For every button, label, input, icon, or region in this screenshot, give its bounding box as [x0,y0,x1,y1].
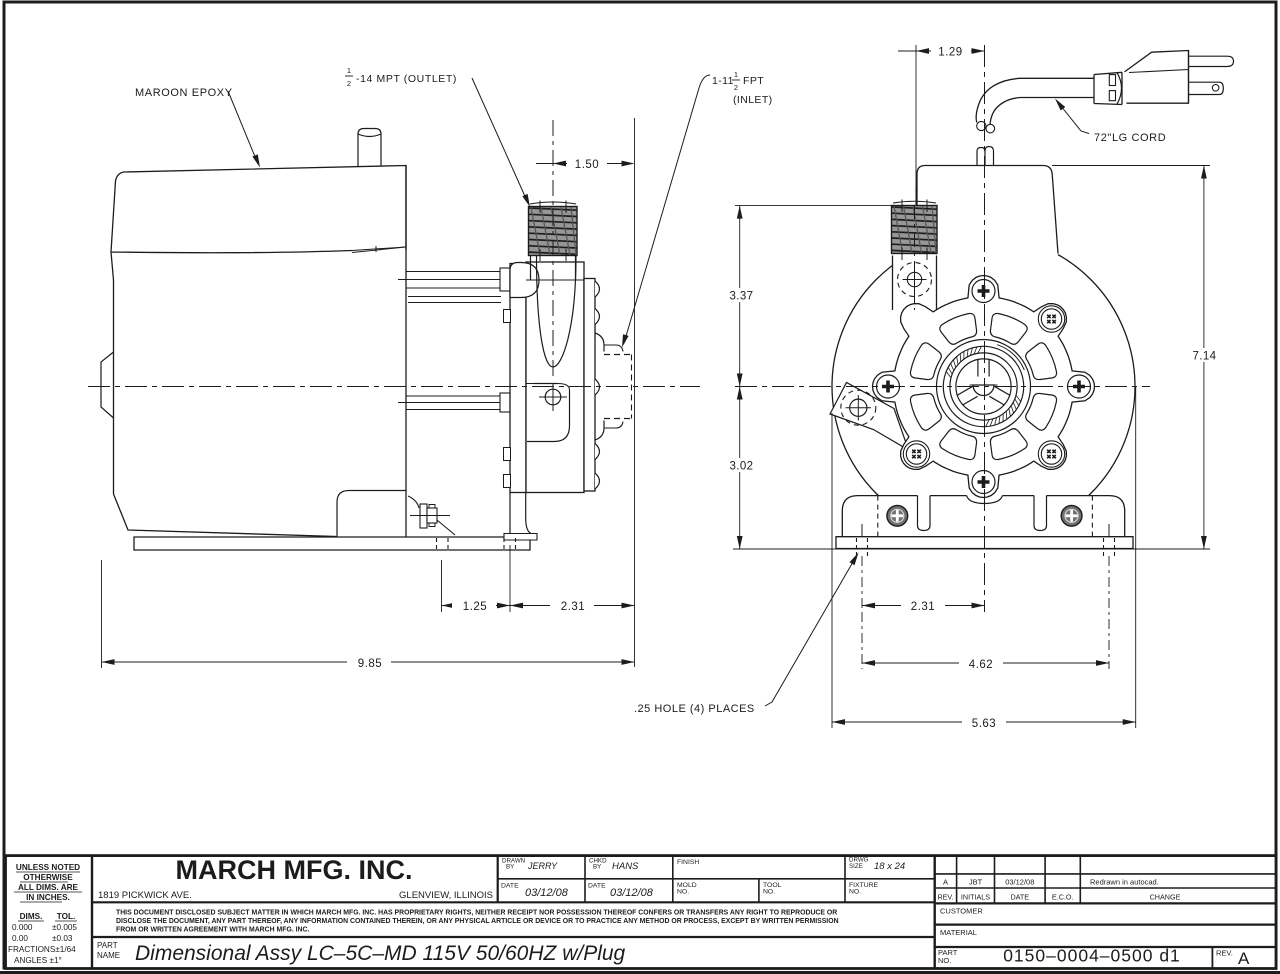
svg-text:±0.03: ±0.03 [52,934,73,943]
svg-text:9.85: 9.85 [358,658,382,670]
svg-text:DIMS.: DIMS. [20,912,43,921]
svg-text:FRACTIONS±1/64: FRACTIONS±1/64 [8,945,76,954]
svg-text:±0.005: ±0.005 [52,923,77,932]
svg-text:JERRY: JERRY [527,861,558,871]
svg-text:Dimensional Assy LC–5C–MD 1: Dimensional Assy LC–5C–MD 115V 50/60HZ w… [135,942,626,965]
svg-text:HANS: HANS [612,861,639,872]
svg-text:MAROON EPOXY: MAROON EPOXY [135,87,233,99]
svg-text:(INLET): (INLET) [733,94,773,106]
svg-text:DATE: DATE [588,883,606,890]
svg-text:ANGLES ±1°: ANGLES ±1° [14,956,62,965]
svg-text:ALL DIMS. ARE: ALL DIMS. ARE [18,883,79,892]
svg-text:CUSTOMER: CUSTOMER [940,907,983,916]
svg-text:0.000: 0.000 [12,923,33,932]
svg-text:A: A [943,878,948,887]
svg-text:JBT: JBT [969,878,983,887]
svg-text:1.25: 1.25 [463,601,487,613]
svg-text:2.31: 2.31 [561,601,585,613]
svg-text:REV.: REV. [1216,949,1233,958]
svg-text:NO.: NO. [677,889,689,896]
svg-text:18 x 24: 18 x 24 [874,861,905,872]
svg-text:DATE: DATE [501,883,519,890]
svg-text:03/12/08: 03/12/08 [1005,878,1034,887]
svg-text:FROM OR WRITTEN AGREEMENT WITH: FROM OR WRITTEN AGREEMENT WITH MARCH MFG… [116,927,310,934]
svg-text:4.62: 4.62 [969,659,993,671]
svg-text:2: 2 [347,79,351,88]
svg-text:7.14: 7.14 [1193,351,1217,363]
svg-text:5.63: 5.63 [972,718,996,730]
svg-text:SIZE: SIZE [849,863,863,870]
svg-text:MATERIAL: MATERIAL [940,928,977,937]
svg-text:Redrawn in autocad.: Redrawn in autocad. [1090,878,1159,887]
svg-text:DATE: DATE [1010,893,1029,902]
svg-text:PART: PART [97,941,118,950]
svg-text:NO.: NO. [938,956,951,965]
svg-text:72"LG CORD: 72"LG CORD [1094,132,1166,144]
svg-text:GLENVIEW, ILLINOIS: GLENVIEW, ILLINOIS [399,890,493,901]
svg-text:CHANGE: CHANGE [1150,893,1181,902]
svg-text:03/12/08: 03/12/08 [610,887,654,899]
svg-text:NO.: NO. [849,889,861,896]
svg-text:BY: BY [506,864,514,871]
svg-text:1: 1 [347,66,351,75]
svg-text:A: A [1238,949,1250,968]
svg-text:1-11: 1-11 [712,75,734,87]
svg-text:E.C.O.: E.C.O. [1052,893,1074,902]
svg-text:1819 PICKWICK AVE.: 1819 PICKWICK AVE. [98,890,192,901]
svg-text:INITIALS: INITIALS [961,893,990,902]
svg-text:0.00: 0.00 [12,934,28,943]
svg-text:TOL.: TOL. [57,912,76,921]
svg-text:REV.: REV. [937,893,953,902]
svg-text:FINISH: FINISH [677,859,699,866]
svg-text:THIS DOCUMENT DISCLOSED SUBJEC: THIS DOCUMENT DISCLOSED SUBJECT MATTER I… [116,910,837,917]
svg-text:03/12/08: 03/12/08 [525,887,569,899]
svg-text:.25 HOLE (4) PLACES: .25 HOLE (4) PLACES [634,703,755,715]
svg-text:NAME: NAME [97,951,120,960]
svg-text:3.37: 3.37 [730,291,754,303]
svg-text:UNLESS NOTED: UNLESS NOTED [16,863,80,872]
svg-text:BY: BY [593,864,601,871]
svg-text:OTHERWISE: OTHERWISE [23,873,73,882]
svg-text:1.50: 1.50 [575,159,599,171]
svg-text:0150–0004–0500 d1: 0150–0004–0500 d1 [1003,946,1181,966]
svg-text:-14 MPT (OUTLET): -14 MPT (OUTLET) [356,73,457,85]
svg-text:3.02: 3.02 [730,461,754,473]
svg-text:2: 2 [734,83,738,92]
svg-text:FPT: FPT [743,75,764,87]
svg-text:1: 1 [734,70,738,79]
svg-text:1.29: 1.29 [938,47,962,59]
svg-text:IN INCHES.: IN INCHES. [26,893,70,902]
svg-text:MARCH MFG. INC.: MARCH MFG. INC. [176,855,413,885]
svg-text:DISCLOSE THE DOCUMENT, ANY PAR: DISCLOSE THE DOCUMENT, ANY PART THEREOF,… [116,918,839,925]
svg-text:2.31: 2.31 [911,601,935,613]
svg-text:NO.: NO. [763,889,775,896]
